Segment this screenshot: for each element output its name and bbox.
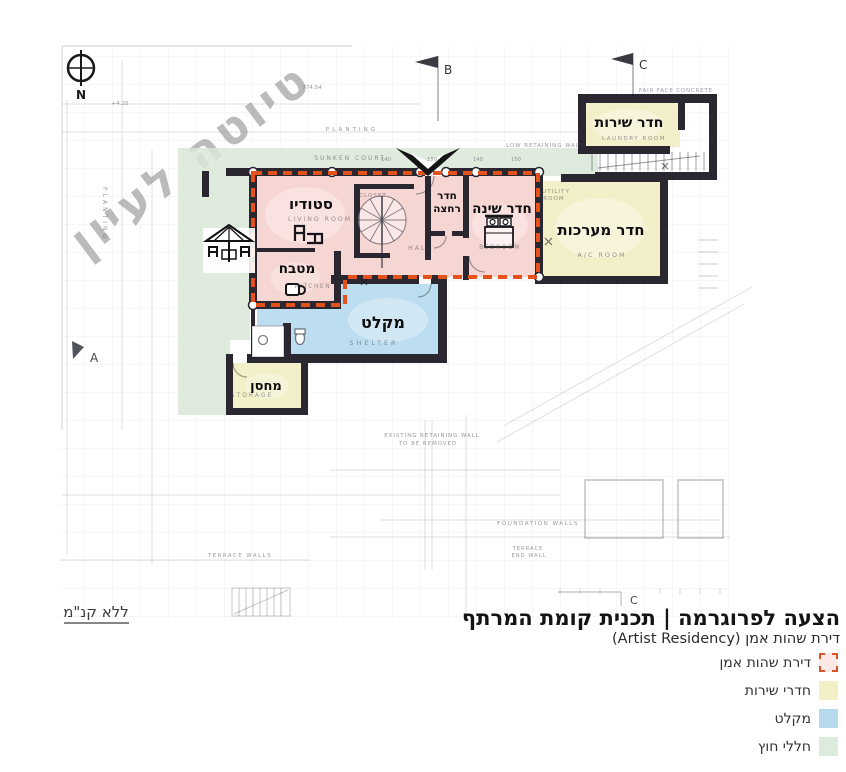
svg-text:LAUNDRY ROOM: LAUNDRY ROOM bbox=[602, 136, 666, 142]
legend-item-outdoor: חללי חוץ bbox=[758, 737, 838, 756]
room-label-shelter: מקלט bbox=[361, 313, 405, 332]
legend-item-residency: דירת שהות אמן bbox=[719, 653, 838, 672]
scale-note: ללא קנ"מ bbox=[63, 603, 129, 623]
legend: דירת שהות אמן חדרי שירות מקלט חללי חוץ bbox=[719, 653, 838, 756]
svg-text:A: A bbox=[90, 351, 99, 365]
legend-swatch-shelter bbox=[819, 709, 838, 728]
svg-text:774.54: 774.54 bbox=[302, 85, 322, 91]
room-label-service: חדר שירות bbox=[595, 115, 664, 131]
legend-swatch-residency bbox=[819, 653, 838, 672]
svg-text:EXISTING RETAINING WALL: EXISTING RETAINING WALL bbox=[384, 433, 480, 439]
svg-text:PLANTING: PLANTING bbox=[326, 127, 378, 133]
floor-plan-sheet: טיוטה לעיון bbox=[0, 0, 846, 768]
svg-text:C: C bbox=[639, 58, 647, 72]
legend-label: מקלט bbox=[775, 711, 811, 727]
legend-swatch-outdoor bbox=[819, 737, 838, 756]
svg-text:BEDROOM: BEDROOM bbox=[479, 244, 521, 251]
svg-text:TERRACE WALLS: TERRACE WALLS bbox=[207, 553, 272, 559]
north-label: N bbox=[76, 88, 86, 102]
room-label-storage: מחסן bbox=[250, 379, 282, 394]
svg-text:SUNKEN COURT: SUNKEN COURT bbox=[314, 155, 386, 162]
page-subtitle: דירת שהות אמן (Artist Residency) bbox=[462, 631, 840, 647]
room-label-studio: סטודיו bbox=[289, 195, 333, 213]
svg-text:LOW RETAINING WALL: LOW RETAINING WALL bbox=[506, 143, 584, 149]
svg-text:HALL: HALL bbox=[408, 245, 432, 252]
svg-text:FOUNDATION WALLS: FOUNDATION WALLS bbox=[497, 521, 579, 527]
legend-item-shelter: מקלט bbox=[775, 709, 838, 728]
svg-text:FAIR FACE CONCRETE: FAIR FACE CONCRETE bbox=[639, 88, 713, 94]
title-block: הצעה לפרוגרמה | תכנית קומת המרתף דירת שה… bbox=[462, 606, 840, 647]
room-label-systems: חדר מערכות bbox=[557, 221, 644, 239]
room-label-kitchen: מטבח bbox=[279, 261, 315, 277]
legend-label: חדרי שירות bbox=[745, 683, 811, 699]
legend-label: חללי חוץ bbox=[758, 739, 811, 755]
legend-label: דירת שהות אמן bbox=[719, 655, 811, 671]
svg-text:SHELTER: SHELTER bbox=[350, 339, 399, 347]
svg-text:KITCHEN: KITCHEN bbox=[295, 283, 332, 290]
svg-text:150: 150 bbox=[427, 157, 437, 163]
legend-swatch-service bbox=[819, 681, 838, 700]
svg-text:150: 150 bbox=[511, 157, 521, 163]
svg-text:UTILITY: UTILITY bbox=[542, 189, 570, 195]
svg-text:LIVING ROOM: LIVING ROOM bbox=[288, 216, 352, 223]
svg-text:ROOM: ROOM bbox=[543, 196, 565, 202]
svg-text:ללא קנ"מ: ללא קנ"מ bbox=[63, 603, 129, 621]
svg-text:TO BE REMOVED: TO BE REMOVED bbox=[398, 441, 457, 447]
svg-text:PLANTING: PLANTING bbox=[101, 187, 108, 241]
page-title: הצעה לפרוגרמה | תכנית קומת המרתף bbox=[462, 606, 840, 630]
svg-text:CLOSET: CLOSET bbox=[359, 193, 387, 199]
svg-text:END WALL: END WALL bbox=[512, 553, 547, 559]
room-label-bedroom: חדר שינה bbox=[472, 201, 532, 217]
svg-text:+4.25: +4.25 bbox=[111, 101, 129, 107]
room-label-bathroom-1: חדר bbox=[437, 190, 457, 202]
legend-item-service: חדרי שירות bbox=[745, 681, 838, 700]
umbrella-table-icon bbox=[203, 225, 255, 273]
svg-text:TERRACE: TERRACE bbox=[512, 546, 544, 552]
svg-text:B: B bbox=[444, 63, 452, 77]
svg-text:A/C ROOM: A/C ROOM bbox=[577, 251, 626, 259]
svg-text:140: 140 bbox=[381, 157, 391, 163]
svg-text:140: 140 bbox=[473, 157, 483, 163]
room-label-bathroom-2: רחצה bbox=[433, 203, 461, 215]
